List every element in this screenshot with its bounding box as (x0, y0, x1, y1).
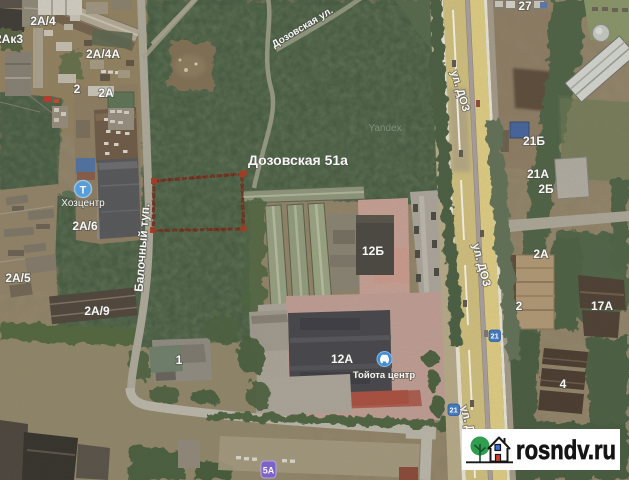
svg-text:rosndv.ru: rosndv.ru (516, 435, 616, 465)
